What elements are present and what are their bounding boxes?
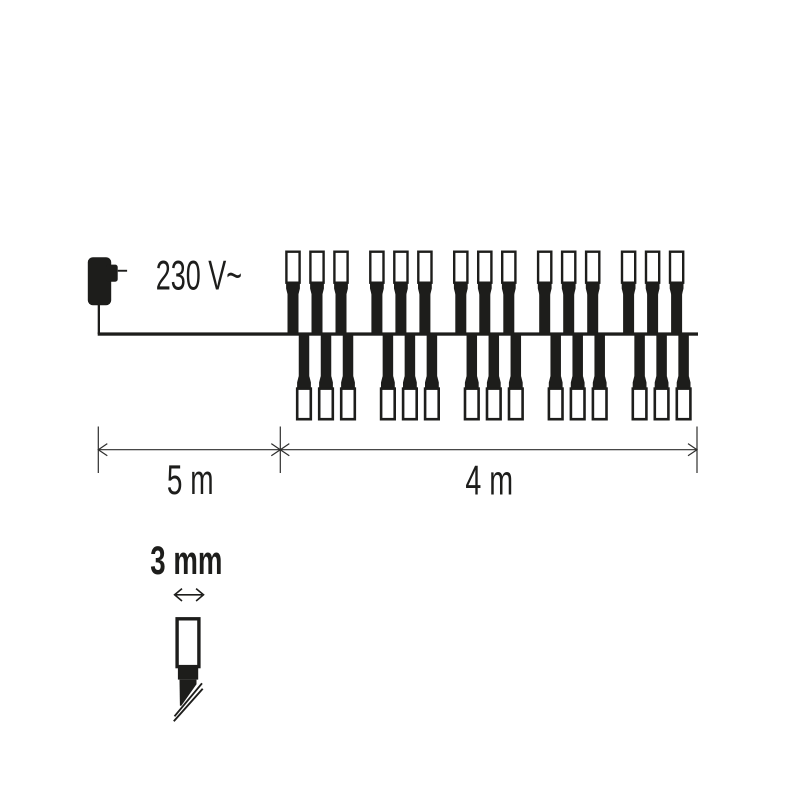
svg-text:230 V~: 230 V~ xyxy=(156,253,242,299)
svg-text:3 mm: 3 mm xyxy=(150,539,222,583)
svg-text:5 m: 5 m xyxy=(167,457,214,504)
svg-text:4 m: 4 m xyxy=(465,456,513,504)
